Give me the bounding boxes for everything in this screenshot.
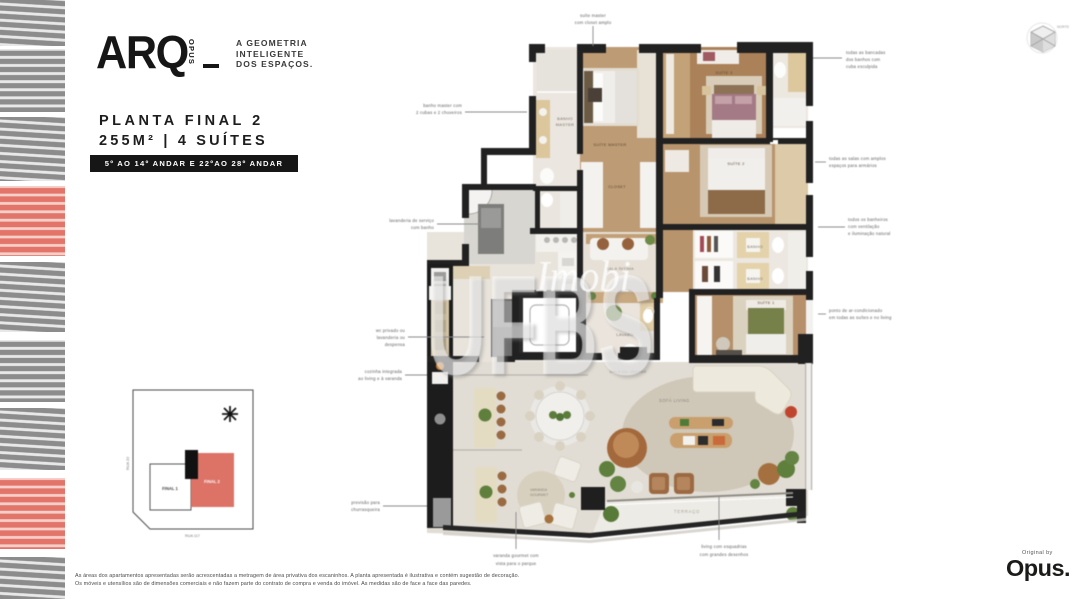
svg-text:SUÍTE 3: SUÍTE 3 — [715, 70, 733, 75]
svg-text:em todas as suítes e no living: em todas as suítes e no living — [829, 315, 892, 320]
svg-text:espaços para armários: espaços para armários — [829, 163, 877, 168]
svg-text:FINAL 1: FINAL 1 — [162, 486, 178, 491]
svg-text:vista para o parque: vista para o parque — [496, 561, 537, 566]
svg-text:2 cubas e 2 chuveiros: 2 cubas e 2 chuveiros — [416, 110, 462, 115]
svg-text:SUÍTE 1: SUÍTE 1 — [757, 300, 775, 305]
svg-text:lavanderia ou: lavanderia ou — [377, 335, 406, 340]
svg-text:com closet amplo: com closet amplo — [575, 20, 612, 25]
svg-text:churrasqueira: churrasqueira — [351, 507, 380, 512]
svg-text:com grandes desenhos: com grandes desenhos — [700, 552, 749, 557]
svg-text:com ventilação: com ventilação — [848, 224, 880, 229]
svg-text:NORTE: NORTE — [1057, 25, 1070, 29]
svg-text:todas as salas com amplos: todas as salas com amplos — [829, 156, 886, 161]
svg-text:CLOSET: CLOSET — [608, 184, 626, 189]
svg-text:SOFÁ LIVING: SOFÁ LIVING — [659, 398, 690, 403]
svg-text:BANHO: BANHO — [557, 116, 573, 121]
svg-text:wc privado ou: wc privado ou — [376, 328, 406, 333]
svg-text:MASTER: MASTER — [556, 122, 574, 127]
svg-text:despensa: despensa — [385, 342, 406, 347]
svg-text:todas as bancadas: todas as bancadas — [846, 50, 885, 55]
svg-text:lavanderia de serviço: lavanderia de serviço — [389, 218, 434, 223]
svg-text:VARANDA: VARANDA — [530, 488, 548, 492]
svg-text:previsão para: previsão para — [351, 500, 380, 505]
svg-text:GOURMET: GOURMET — [530, 493, 549, 497]
svg-text:RUA 20: RUA 20 — [126, 457, 130, 470]
svg-text:FINAL 2: FINAL 2 — [204, 479, 220, 484]
svg-text:ponto de ar-condicionado: ponto de ar-condicionado — [829, 308, 883, 313]
svg-text:dos banhos com: dos banhos com — [846, 57, 881, 62]
svg-text:cozinha integrada: cozinha integrada — [365, 369, 403, 374]
svg-text:TERRAÇO: TERRAÇO — [674, 509, 700, 514]
svg-text:suíte master: suíte master — [580, 13, 606, 18]
svg-text:banho master com: banho master com — [423, 103, 462, 108]
svg-text:todos os banheiros: todos os banheiros — [848, 217, 888, 222]
svg-text:BANHO: BANHO — [747, 244, 763, 249]
svg-text:living com esquadrias: living com esquadrias — [701, 544, 747, 549]
svg-text:RUA 117: RUA 117 — [185, 534, 200, 538]
svg-text:SUÍTE 2: SUÍTE 2 — [727, 161, 745, 166]
svg-text:BANHO: BANHO — [747, 276, 763, 281]
svg-text:cuba esculpida: cuba esculpida — [846, 64, 878, 69]
svg-text:ao living e à varanda: ao living e à varanda — [358, 376, 402, 381]
svg-text:e iluminação natural: e iluminação natural — [848, 231, 890, 236]
svg-text:varanda gourmet com: varanda gourmet com — [493, 553, 539, 558]
svg-text:com banho: com banho — [411, 225, 434, 230]
svg-text:Imobi: Imobi — [535, 252, 631, 301]
svg-text:®: ® — [645, 304, 655, 319]
svg-text:SUÍTE MASTER: SUÍTE MASTER — [593, 142, 626, 147]
